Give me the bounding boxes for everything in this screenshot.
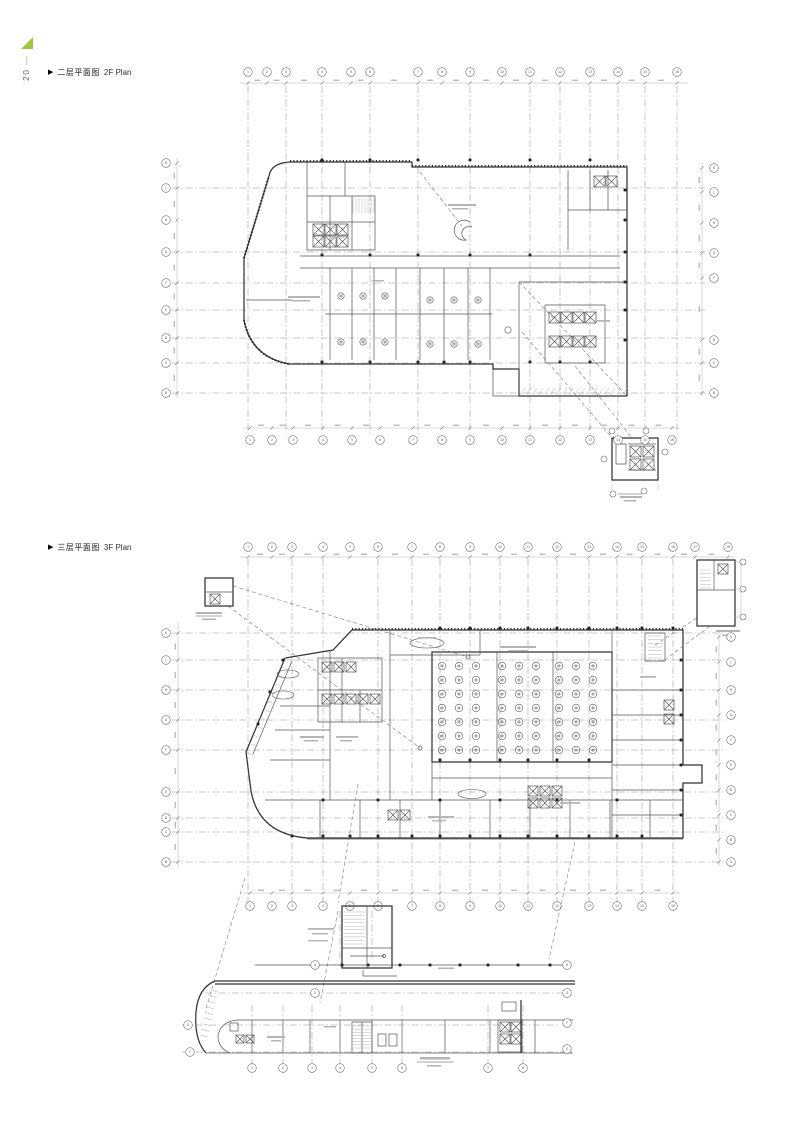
svg-text:2: 2 — [271, 545, 273, 549]
svg-text:12: 12 — [555, 545, 559, 549]
svg-text:B: B — [165, 860, 167, 864]
svg-text:17: 17 — [693, 545, 697, 549]
svg-text:14: 14 — [615, 545, 619, 549]
svg-text:5: 5 — [314, 991, 316, 995]
svg-text:J: J — [165, 186, 167, 190]
svg-text:15: 15 — [640, 904, 644, 908]
svg-text:2: 2 — [266, 70, 268, 74]
svg-text:6: 6 — [377, 545, 379, 549]
svg-text:F: F — [189, 1050, 191, 1054]
svg-text:B: B — [730, 838, 732, 842]
svg-text:1: 1 — [249, 438, 251, 442]
svg-text:E: E — [165, 308, 167, 312]
svg-text:4: 4 — [322, 545, 324, 549]
svg-text:10: 10 — [500, 70, 504, 74]
svg-text:J: J — [730, 660, 732, 664]
svg-text:E: E — [730, 763, 732, 767]
svg-text:6: 6 — [379, 438, 381, 442]
plan-2f-drawing — [172, 86, 708, 434]
svg-text:F: F — [566, 1021, 568, 1025]
svg-text:E: E — [566, 1047, 568, 1051]
svg-text:18: 18 — [726, 545, 730, 549]
svg-text:7: 7 — [411, 545, 413, 549]
svg-text:3: 3 — [311, 1066, 313, 1070]
floor-plan-drawings: 1234567891011121314151612345678910111213… — [0, 0, 800, 1139]
svg-text:J: J — [165, 658, 167, 662]
svg-text:4: 4 — [339, 1066, 341, 1070]
svg-text:10: 10 — [498, 904, 502, 908]
svg-text:8: 8 — [441, 438, 443, 442]
svg-text:13: 13 — [587, 545, 591, 549]
plan-3f-drawing — [172, 559, 726, 902]
svg-text:7: 7 — [487, 1066, 489, 1070]
svg-text:2: 2 — [271, 904, 273, 908]
svg-text:2: 2 — [271, 438, 273, 442]
svg-text:J: J — [713, 190, 715, 194]
svg-text:5: 5 — [371, 1066, 373, 1070]
svg-text:1: 1 — [251, 1066, 253, 1070]
svg-text:8: 8 — [439, 904, 441, 908]
svg-text:12: 12 — [558, 438, 562, 442]
svg-text:16: 16 — [671, 904, 675, 908]
svg-text:E: E — [165, 790, 167, 794]
svg-text:7: 7 — [412, 438, 414, 442]
svg-text:15: 15 — [640, 545, 644, 549]
svg-text:10: 10 — [500, 438, 504, 442]
detail-callout-2f — [420, 172, 666, 502]
svg-text:F: F — [165, 748, 167, 752]
svg-text:9: 9 — [469, 438, 471, 442]
svg-text:10: 10 — [498, 545, 502, 549]
svg-text:11: 11 — [526, 904, 530, 908]
svg-text:7: 7 — [411, 904, 413, 908]
svg-text:13: 13 — [587, 904, 591, 908]
svg-text:6: 6 — [401, 1066, 403, 1070]
svg-text:B: B — [165, 391, 167, 395]
svg-text:5: 5 — [351, 438, 353, 442]
svg-text:16: 16 — [671, 545, 675, 549]
svg-text:B: B — [713, 391, 715, 395]
svg-text:9: 9 — [469, 545, 471, 549]
svg-text:1: 1 — [249, 904, 251, 908]
svg-text:3: 3 — [285, 70, 287, 74]
svg-text:15: 15 — [643, 438, 647, 442]
svg-text:8: 8 — [441, 70, 443, 74]
svg-text:9: 9 — [469, 904, 471, 908]
svg-text:4: 4 — [322, 904, 324, 908]
svg-text:16: 16 — [675, 70, 679, 74]
svg-text:14: 14 — [615, 904, 619, 908]
svg-text:1: 1 — [247, 545, 249, 549]
svg-text:11: 11 — [526, 545, 530, 549]
svg-text:5: 5 — [350, 70, 352, 74]
detail-callout-3f-left — [196, 578, 470, 750]
mezzanine-strip-drawing — [182, 784, 575, 1067]
svg-text:9: 9 — [469, 70, 471, 74]
svg-text:4: 4 — [314, 963, 316, 967]
svg-text:8: 8 — [522, 1066, 524, 1070]
svg-text:13: 13 — [588, 70, 592, 74]
svg-text:3: 3 — [292, 438, 294, 442]
strip-grid-bubbles: 12345678GFHGFE45 — [184, 961, 572, 1073]
svg-text:12: 12 — [555, 904, 559, 908]
svg-text:11: 11 — [528, 438, 532, 442]
svg-text:1: 1 — [247, 70, 249, 74]
svg-text:6: 6 — [369, 70, 371, 74]
svg-text:F: F — [713, 276, 715, 280]
svg-text:4: 4 — [321, 70, 323, 74]
svg-text:15: 15 — [643, 70, 647, 74]
svg-text:3: 3 — [291, 904, 293, 908]
svg-text:F: F — [165, 281, 167, 285]
svg-text:16: 16 — [670, 438, 674, 442]
svg-text:3: 3 — [291, 545, 293, 549]
svg-text:8: 8 — [439, 545, 441, 549]
detail-callout-3f-right — [655, 560, 741, 662]
svg-text:2: 2 — [282, 1066, 284, 1070]
svg-text:4: 4 — [322, 438, 324, 442]
svg-text:14: 14 — [616, 70, 620, 74]
svg-text:13: 13 — [588, 438, 592, 442]
book-page: 20 — ▶ 二层平面图 2F Plan ▶ 三层平面图 3F Plan 123… — [0, 0, 800, 1139]
stair-detail — [308, 906, 392, 968]
svg-text:5: 5 — [349, 545, 351, 549]
svg-text:14: 14 — [616, 438, 620, 442]
svg-text:F: F — [730, 738, 732, 742]
svg-text:7: 7 — [417, 70, 419, 74]
svg-text:12: 12 — [558, 70, 562, 74]
svg-text:11: 11 — [528, 70, 532, 74]
